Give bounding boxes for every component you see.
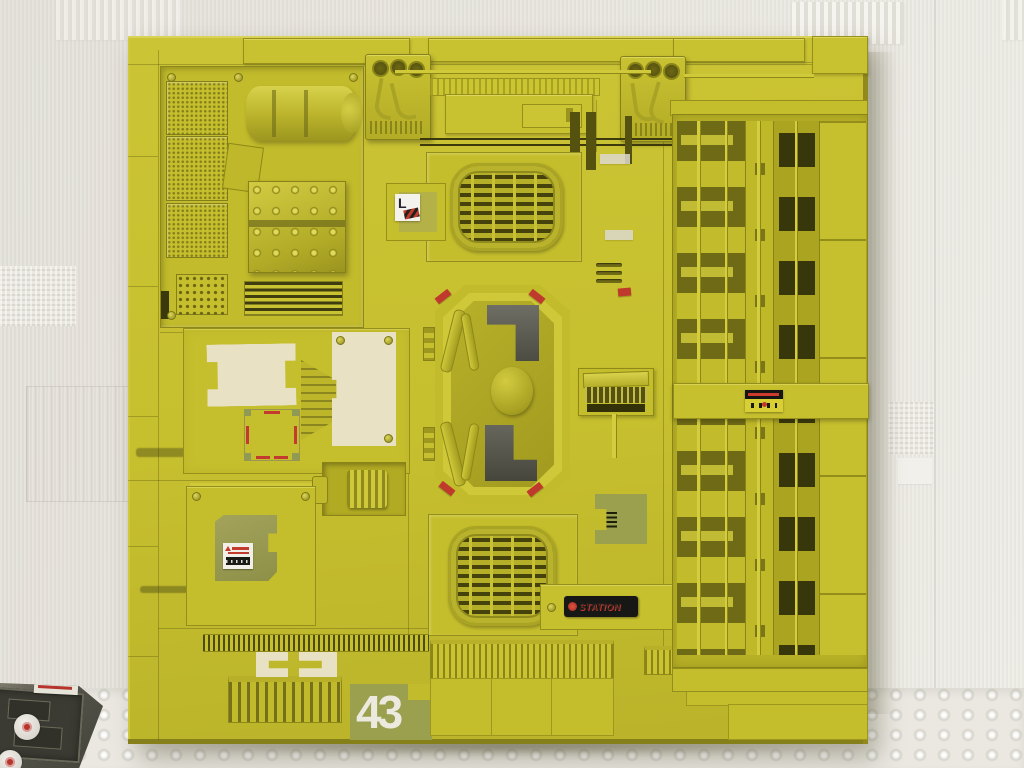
clamp-bank-section <box>670 100 868 694</box>
wall-grid-texture-left <box>0 266 76 326</box>
red-dot-icon <box>568 602 577 611</box>
red-mark <box>618 287 632 296</box>
bottom-block <box>728 704 868 740</box>
red-dash <box>274 456 288 459</box>
red-dash <box>256 456 270 459</box>
l-sticker-letter: L <box>398 195 407 211</box>
warning-sticker <box>223 543 253 569</box>
screw <box>336 336 345 345</box>
wall-faint-panel-left <box>26 386 134 502</box>
red-dot-icon <box>762 402 767 407</box>
red-text-line <box>748 393 779 396</box>
screw <box>547 603 556 612</box>
corner-pad <box>292 409 299 416</box>
groove-lines <box>420 134 688 148</box>
dark-slot <box>586 112 596 170</box>
clamp-bank <box>672 114 868 668</box>
tank-end-cap <box>341 93 363 133</box>
greeble-cluster-left <box>365 54 431 140</box>
panel-seam <box>491 679 492 735</box>
octagon-hatch <box>403 261 598 527</box>
label-sticker <box>600 154 630 164</box>
winch-base <box>587 404 645 412</box>
ribbed-strip-fine <box>430 640 614 683</box>
vent-slot <box>596 279 622 283</box>
panel-number: 43 <box>356 684 399 740</box>
screw <box>349 73 358 82</box>
masked-patch-panel <box>183 328 410 474</box>
corner-pad <box>244 453 251 460</box>
red-text-line <box>228 552 249 554</box>
red-logo-icon <box>22 722 32 732</box>
horizontal-pipe <box>395 70 651 73</box>
top-edge-block <box>673 38 805 62</box>
horizontal-pipe <box>684 74 814 77</box>
vent-slot <box>596 271 622 275</box>
patch-notch <box>408 684 432 700</box>
model-panel: L <box>128 36 868 744</box>
screw <box>301 492 310 501</box>
cream-bracket-patch <box>299 652 337 677</box>
wall-vent-texture-topleft <box>56 0 180 40</box>
checker-vent-plate <box>176 274 228 315</box>
slat-grille <box>244 281 343 316</box>
section-bottom-strip <box>672 668 868 692</box>
cylindrical-tank <box>246 86 356 141</box>
port-icon <box>390 59 407 76</box>
panel-seam <box>663 100 664 660</box>
port-icon <box>372 60 389 77</box>
panel-seam <box>128 480 322 481</box>
weathering-mark <box>136 448 190 457</box>
vent-slot <box>596 263 622 267</box>
crossbar <box>673 383 869 419</box>
panel-seam <box>158 50 159 740</box>
panel-seam <box>128 64 868 65</box>
cream-bracket-patch <box>256 652 288 677</box>
engine-block <box>248 181 346 273</box>
comb-grille <box>228 676 342 723</box>
tank-strap <box>272 90 276 137</box>
screw <box>384 434 393 443</box>
panel-seam <box>128 156 158 157</box>
hinge <box>423 327 435 361</box>
weathering-mark <box>140 586 192 593</box>
station-decal: STATION <box>564 596 638 617</box>
photo-scene: L <box>0 0 1024 768</box>
screw <box>234 73 243 82</box>
panel-seam <box>551 679 552 735</box>
station-strip: STATION <box>540 584 688 630</box>
machinery-bay <box>160 66 364 328</box>
red-dash <box>264 411 280 414</box>
top-edge-block <box>812 36 868 74</box>
perforated-vent-plate <box>166 136 228 201</box>
panel-seam <box>128 546 158 547</box>
port-icon <box>663 63 680 80</box>
corner-pad <box>244 409 251 416</box>
hazard-stripes-icon <box>403 208 420 220</box>
screw <box>167 73 176 82</box>
screw <box>384 336 393 345</box>
cream-rect-patch <box>332 332 396 446</box>
engine-ridge <box>249 220 345 227</box>
red-logo-icon <box>5 757 15 767</box>
wall-crease <box>934 0 936 700</box>
funnel-duct <box>301 360 336 440</box>
warning-decal <box>745 390 783 412</box>
corner-pad <box>292 453 299 460</box>
vent-grille-upper <box>450 163 563 251</box>
red-text-line <box>232 547 249 550</box>
cream-h-patch <box>206 343 296 407</box>
label-sticker <box>605 230 633 240</box>
tank-strap <box>304 90 308 137</box>
hinge <box>423 427 435 461</box>
panel-cast-shadow-wall <box>866 52 896 714</box>
wall-vent-texture-far-right <box>1002 0 1024 40</box>
hatch-dome <box>491 367 533 415</box>
barcode-bar <box>226 557 250 565</box>
screw <box>167 311 176 320</box>
striped-vent-icon <box>597 512 617 529</box>
warning-triangle-icon <box>225 546 231 551</box>
winch-lid <box>583 371 649 388</box>
decal-black-band <box>745 390 783 399</box>
fins <box>370 121 424 134</box>
number-patch: 43 <box>350 684 432 740</box>
wall-white-rect-right <box>898 458 932 484</box>
bottom-block <box>430 678 614 736</box>
panel-seam <box>128 656 158 657</box>
station-decal-text: STATION <box>579 602 621 612</box>
panel-seam <box>128 286 158 287</box>
taped-square-outline <box>244 409 300 461</box>
vertical-pipe <box>612 414 616 458</box>
perforated-vent-plate <box>166 203 228 258</box>
red-dash <box>294 426 297 444</box>
motor-recess <box>322 462 406 516</box>
label-red-text-line <box>38 685 72 690</box>
l-sticker: L <box>395 194 420 221</box>
finned-motor <box>347 470 387 508</box>
perforated-vent-plate <box>166 81 228 135</box>
panel-seam <box>128 416 158 417</box>
ribbed-strip-bottom <box>203 634 429 652</box>
red-dash <box>246 426 249 444</box>
sticker-plate: L <box>386 183 446 241</box>
olive-decal-panel <box>595 494 647 544</box>
access-door-panel <box>186 486 316 626</box>
round-decal <box>14 714 40 740</box>
winch-window <box>585 387 647 403</box>
screw <box>192 492 201 501</box>
tube <box>389 79 416 122</box>
winch-box <box>578 368 654 416</box>
